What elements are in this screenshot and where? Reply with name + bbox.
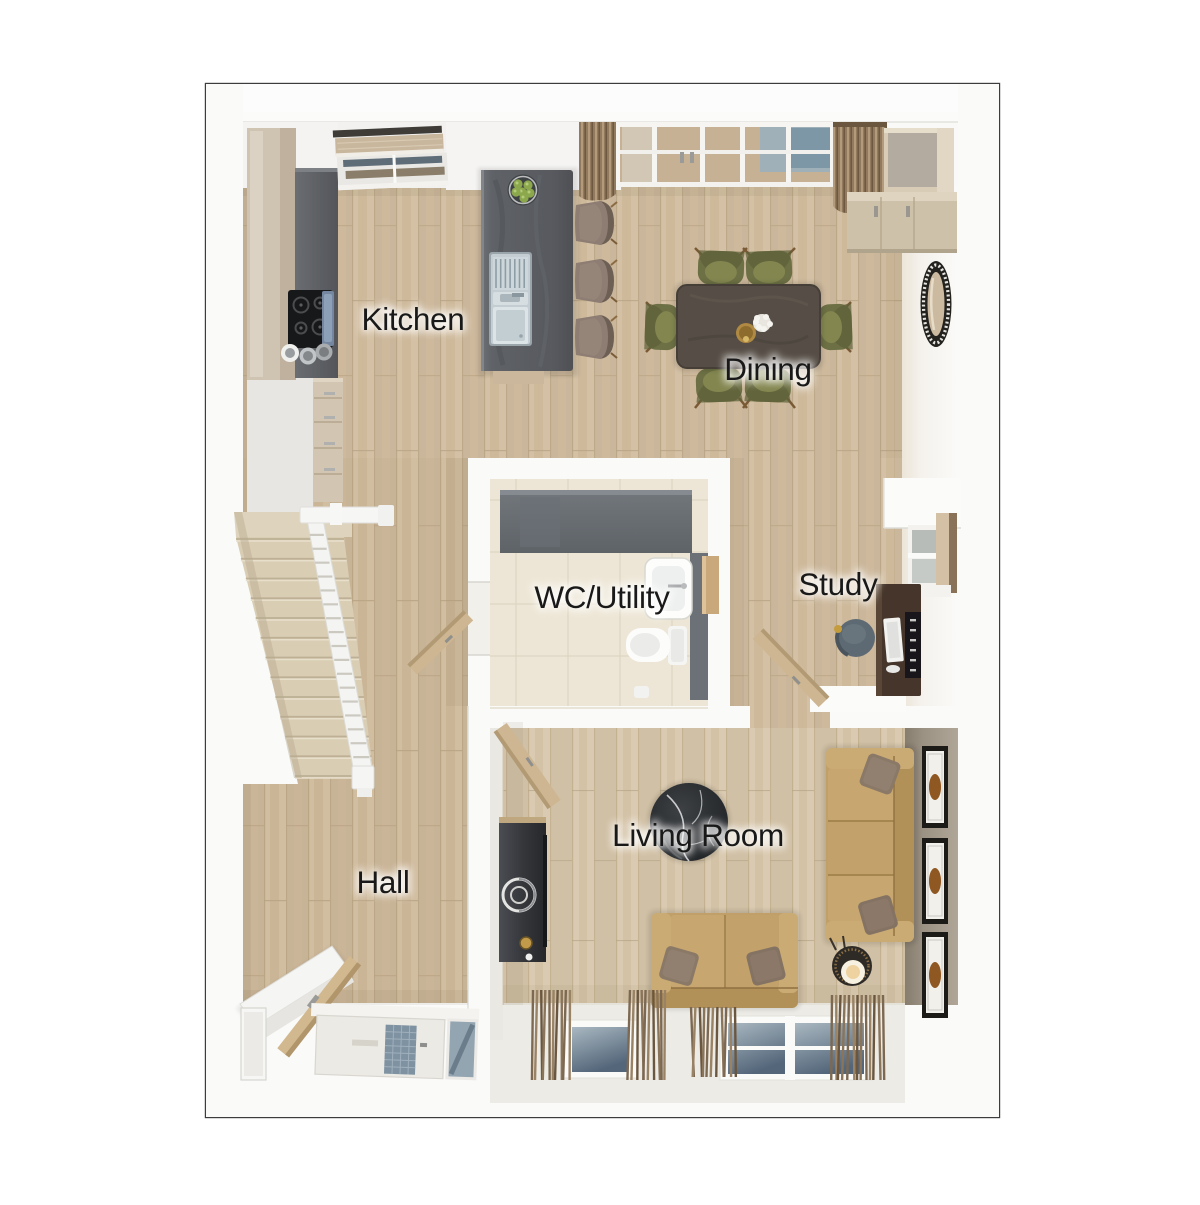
- svg-text:WC/Utility: WC/Utility: [534, 579, 670, 615]
- svg-text:Study: Study: [798, 566, 878, 602]
- svg-text:Dining: Dining: [724, 351, 812, 387]
- svg-text:Hall: Hall: [356, 864, 409, 900]
- svg-text:Living Room: Living Room: [612, 817, 784, 853]
- svg-text:Kitchen: Kitchen: [362, 301, 465, 337]
